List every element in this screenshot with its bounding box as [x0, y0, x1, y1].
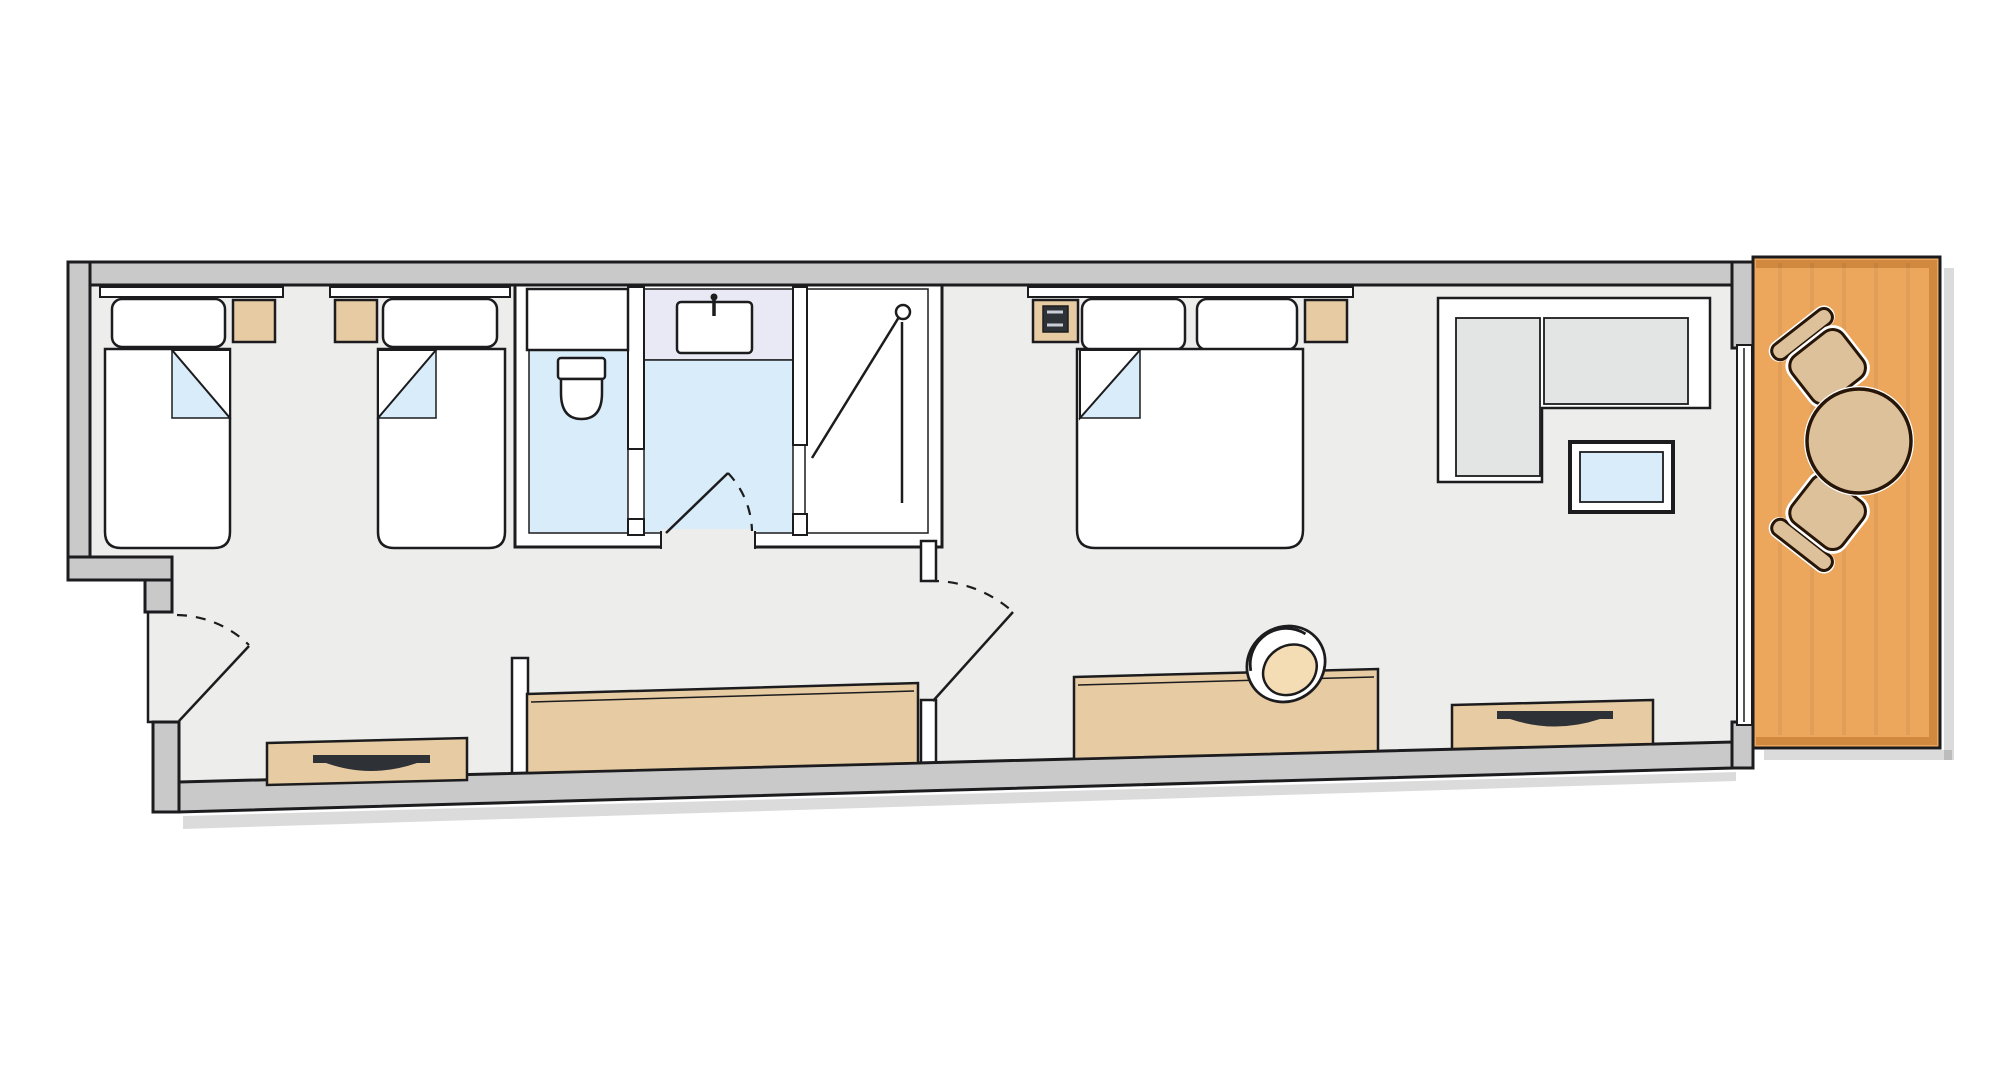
wall-bath-shower-upper: [793, 287, 807, 445]
balcony-shadow-right: [1944, 268, 1954, 760]
faucet-dot: [711, 294, 718, 301]
wall-partition-upper: [921, 541, 936, 581]
shower-head: [896, 305, 910, 319]
sofa-chaise-cushion: [1456, 318, 1540, 476]
wall-corner-bottom-right: [1732, 722, 1753, 768]
wall-stub-hall-left: [512, 658, 528, 778]
phone-icon: [1043, 306, 1068, 332]
wall-top: [68, 262, 1753, 285]
pillow-double-1: [1082, 299, 1185, 350]
toilet-tank: [558, 358, 605, 379]
headboard-2: [330, 287, 510, 297]
toilet-bowl: [561, 379, 602, 419]
wall-corner-top-right: [1732, 262, 1753, 348]
wall-left: [68, 262, 90, 557]
pillow-double-2: [1197, 299, 1297, 350]
nightstand-1: [233, 300, 275, 342]
nightstand-2: [335, 300, 377, 342]
wall-entry-block: [145, 580, 172, 612]
floor-plan-page: [0, 0, 2016, 1079]
nightstand-right: [1305, 300, 1347, 342]
wall-bath-shower-stub: [793, 514, 807, 535]
wall-entry-step: [68, 557, 172, 580]
pillow-1: [112, 299, 225, 347]
floor-plan-drawing: [0, 0, 2016, 1079]
pillow-2: [383, 299, 497, 347]
coffee-table-glass: [1580, 452, 1663, 502]
balcony-shadow-bottom: [1764, 750, 1952, 760]
bath-door-gap: [661, 529, 755, 550]
headboard-1: [100, 287, 283, 297]
balcony-edge-bottom: [1756, 737, 1937, 745]
writing-desk: [1074, 669, 1378, 759]
shower-floor: [805, 289, 928, 533]
wc-counter: [527, 289, 628, 350]
headboard-double: [1028, 287, 1353, 297]
balcony-edge-right: [1929, 260, 1937, 745]
balcony-round-table: [1807, 389, 1911, 493]
bathroom-floor: [644, 360, 793, 533]
wall-corner-bottom-left: [153, 722, 179, 812]
sofa-seat-cushion: [1544, 318, 1688, 404]
wall-wc-bath-upper: [628, 287, 644, 449]
wall-wc-bath-stub: [628, 519, 644, 535]
